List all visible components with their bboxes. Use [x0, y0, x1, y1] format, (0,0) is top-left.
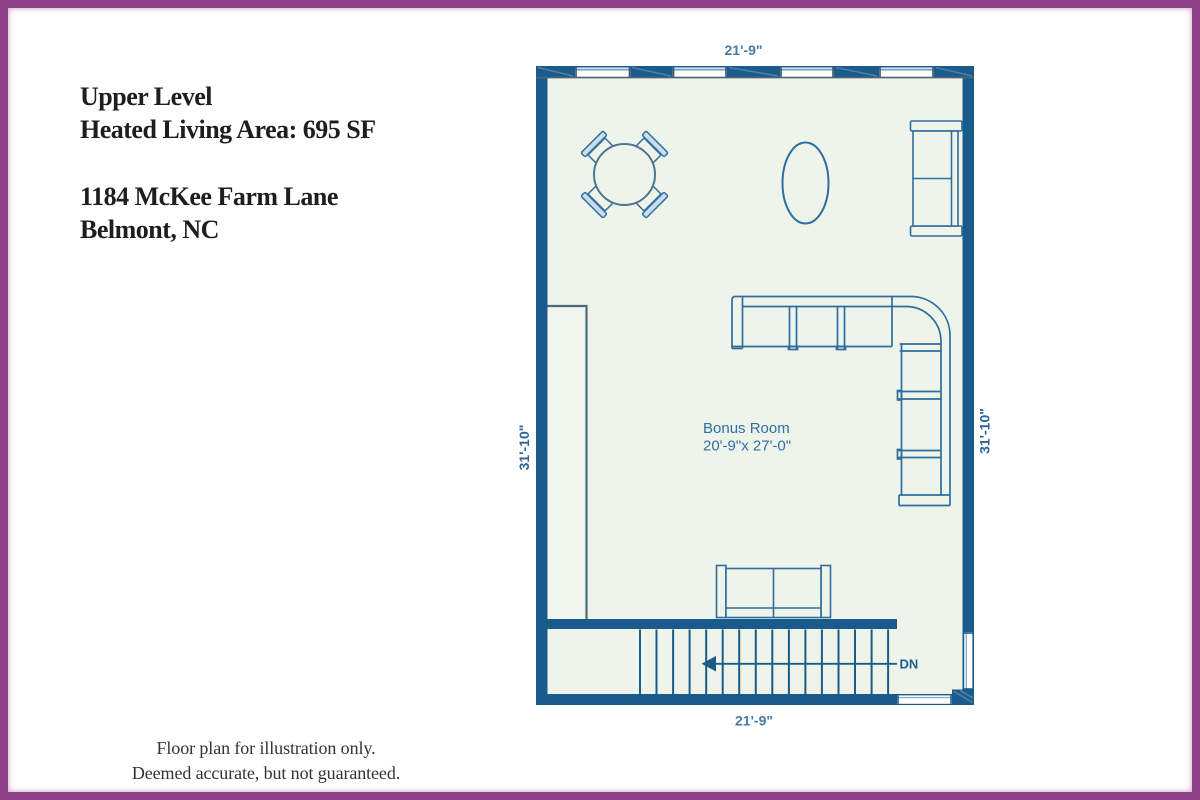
- svg-text:21'-9": 21'-9": [735, 713, 773, 729]
- svg-text:DN: DN: [900, 657, 919, 672]
- svg-text:31'-10": 31'-10": [516, 425, 532, 471]
- svg-text:20'-9"x 27'-0": 20'-9"x 27'-0": [703, 438, 791, 455]
- svg-text:31'-10": 31'-10": [977, 408, 993, 454]
- svg-text:Bonus Room: Bonus Room: [703, 420, 790, 437]
- svg-text:21'-9": 21'-9": [725, 42, 763, 58]
